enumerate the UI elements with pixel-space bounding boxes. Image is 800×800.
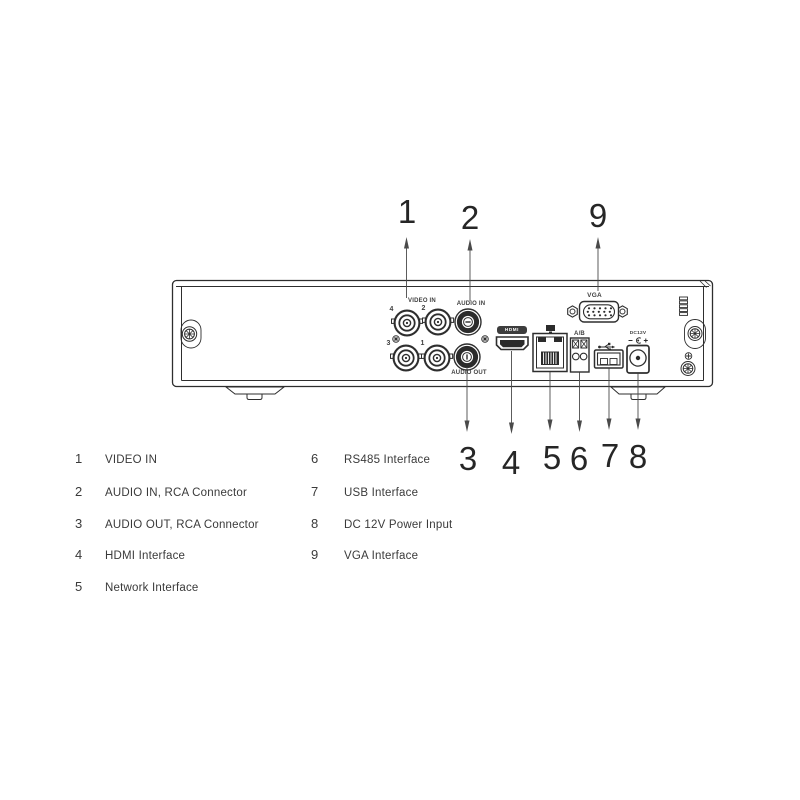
legend-label-1: VIDEO IN <box>105 454 157 466</box>
callout-number-9: 9 <box>582 199 614 232</box>
legend-item-4: 4 HDMI Interface <box>75 547 185 562</box>
label-audio-in: AUDIO IN <box>448 301 494 307</box>
legend-num-6: 6 <box>311 451 344 466</box>
legend-item-3: 3 AUDIO OUT, RCA Connector <box>75 516 259 531</box>
label-vga: VGA <box>582 293 607 300</box>
legend-label-2: AUDIO IN, RCA Connector <box>105 487 247 499</box>
legend-label-4: HDMI Interface <box>105 550 185 562</box>
legend-item-1: 1 VIDEO IN <box>75 451 157 466</box>
usb-port <box>595 350 624 368</box>
legend-item-7: 7 USB Interface <box>311 484 418 499</box>
ground-icon-bnc <box>393 336 400 343</box>
label-bnc-3: 3 <box>385 340 392 347</box>
label-video-in: VIDEO IN <box>399 298 445 304</box>
legend-label-8: DC 12V Power Input <box>344 519 452 531</box>
legend-item-5: 5 Network Interface <box>75 579 199 594</box>
legend-num-3: 3 <box>75 516 105 531</box>
callout-number-2: 2 <box>454 201 486 234</box>
ethernet-port <box>533 334 567 372</box>
legend-num-7: 7 <box>311 484 344 499</box>
legend-item-6: 6 RS485 Interface <box>311 451 430 466</box>
legend-num-8: 8 <box>311 516 344 531</box>
device-art <box>0 0 800 800</box>
screw-icon-right-bottom <box>681 362 695 376</box>
device-foot-left <box>226 387 284 400</box>
legend-label-6: RS485 Interface <box>344 454 430 466</box>
callout-number-6: 6 <box>563 442 595 475</box>
legend-num-9: 9 <box>311 547 344 562</box>
rear-panel-diagram: 1 2 9 3 4 5 6 7 8 VIDEO IN AUDIO IN AUDI… <box>0 0 800 800</box>
screw-icon-right-top <box>688 327 702 341</box>
legend-item-9: 9 VGA Interface <box>311 547 418 562</box>
rs485-terminal <box>571 338 590 372</box>
legend-label-3: AUDIO OUT, RCA Connector <box>105 519 259 531</box>
label-bnc-4: 4 <box>388 306 395 313</box>
legend-num-1: 1 <box>75 451 105 466</box>
legend-num-4: 4 <box>75 547 105 562</box>
rca-audio-in <box>455 309 481 335</box>
label-rs485-ab: A/B <box>567 331 592 337</box>
callout-number-4: 4 <box>495 446 527 479</box>
dc-power-jack <box>627 346 649 374</box>
ground-icon-right <box>685 353 692 360</box>
rca-audio-out <box>454 344 480 370</box>
hdmi-port <box>497 337 529 350</box>
label-bnc-1: 1 <box>419 340 426 347</box>
legend-num-2: 2 <box>75 484 105 499</box>
legend-label-5: Network Interface <box>105 582 199 594</box>
label-audio-out: AUDIO OUT <box>446 370 492 376</box>
label-dc12v: DC12V <box>626 332 650 337</box>
legend-item-2: 2 AUDIO IN, RCA Connector <box>75 484 247 499</box>
callout-number-3: 3 <box>452 442 484 475</box>
legend-item-8: 8 DC 12V Power Input <box>311 516 452 531</box>
ground-icon-audio <box>482 336 489 343</box>
screw-icon-left <box>182 327 196 341</box>
legend-label-9: VGA Interface <box>344 550 418 562</box>
label-hdmi: HDMI <box>497 326 527 334</box>
callout-number-8: 8 <box>622 440 654 473</box>
callout-number-1: 1 <box>391 195 423 228</box>
legend-label-7: USB Interface <box>344 487 418 499</box>
legend-num-5: 5 <box>75 579 105 594</box>
label-bnc-2: 2 <box>420 305 427 312</box>
